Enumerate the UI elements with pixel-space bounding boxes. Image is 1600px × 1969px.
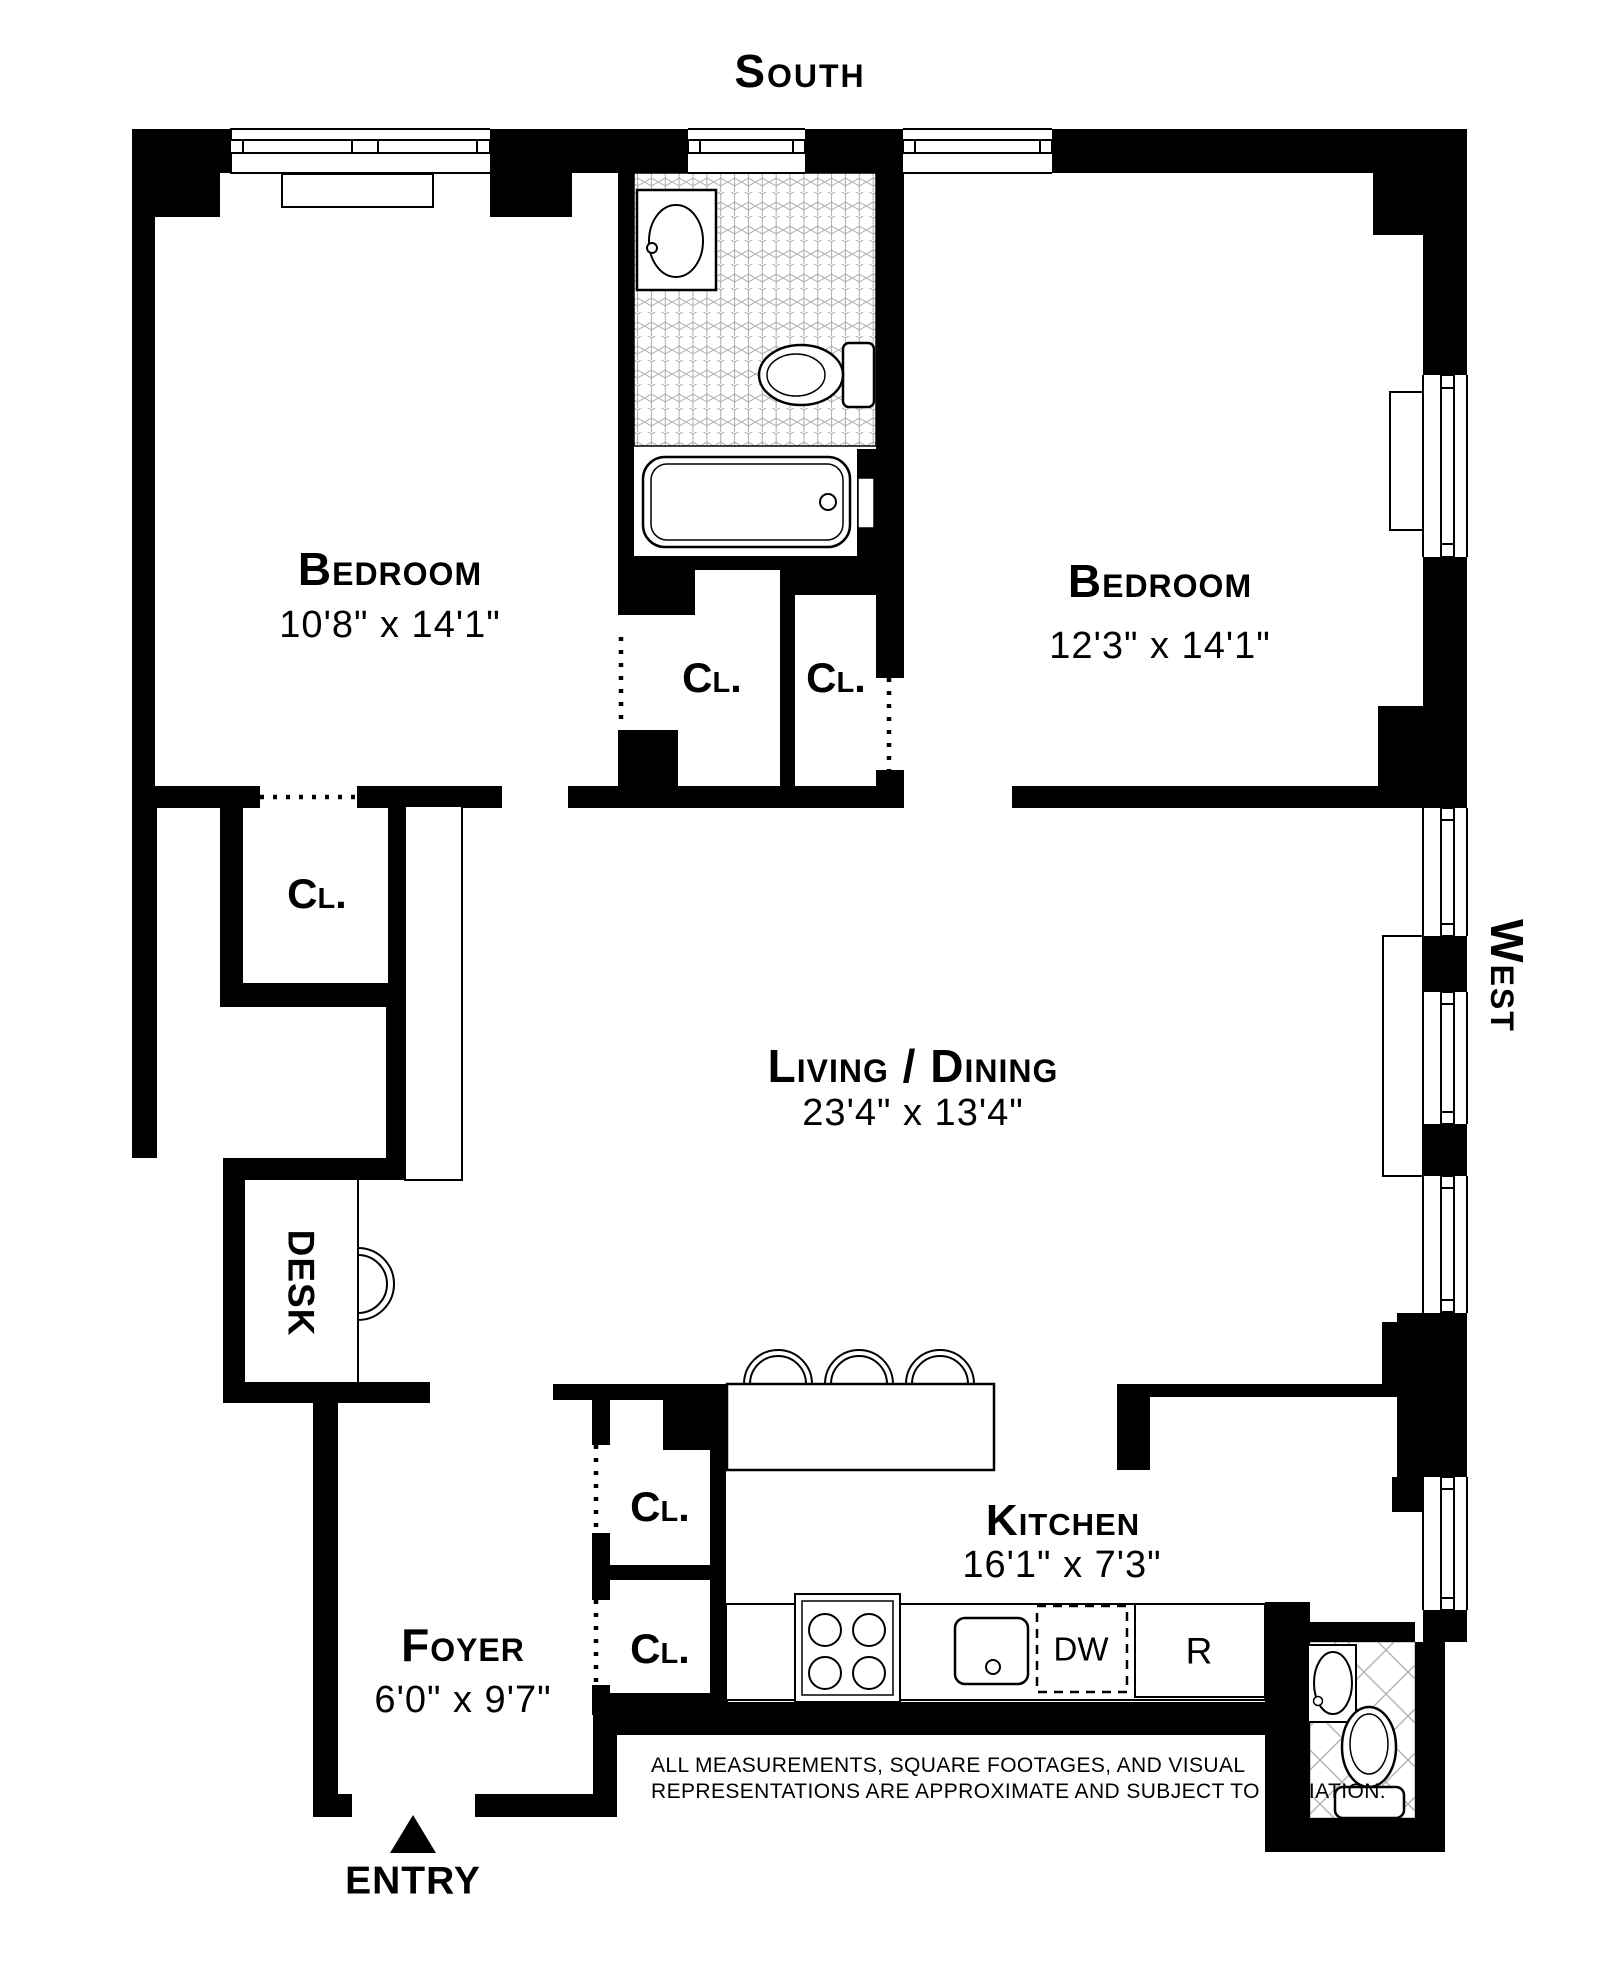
living-dining-name: Living / Dining: [768, 1043, 1059, 1089]
window-east-bedroom2: [1423, 375, 1467, 557]
refrigerator-label: R: [1186, 1633, 1213, 1670]
floor-plan: South West Bedroom 10'8" x 14'1" Bedroom…: [0, 0, 1600, 1969]
entry-label: ENTRY: [345, 1862, 481, 1901]
bathtub-icon: [643, 457, 874, 547]
island-stools: [744, 1350, 974, 1384]
window-west-living-2: [1423, 992, 1467, 1124]
bedroom1-dims: 10'8" x 14'1": [279, 606, 500, 644]
bedroom1-name: Bedroom: [298, 546, 482, 592]
kitchen-island: [727, 1384, 994, 1470]
entry-arrow-icon: [390, 1815, 436, 1853]
bathroom-sink-icon: [637, 190, 716, 290]
kitchen-name: Kitchen: [986, 1499, 1140, 1543]
bedroom2-dims: 12'3" x 14'1": [1049, 627, 1270, 665]
window-south-bedroom2: [903, 129, 1052, 173]
window-west-kitchen: [1423, 1477, 1467, 1610]
bathroom2-sink-icon: [1308, 1645, 1356, 1722]
disclaimer-line-1: ALL MEASUREMENTS, SQUARE FOOTAGES, AND V…: [651, 1753, 1386, 1779]
window-south-bathroom: [688, 129, 805, 173]
radiator-living: [1383, 936, 1423, 1176]
desk-chair-icon: [358, 1248, 394, 1320]
living-dining-dims: 23'4" x 13'4": [802, 1094, 1023, 1132]
compass-south-label: South: [734, 48, 865, 94]
disclaimer-text: ALL MEASUREMENTS, SQUARE FOOTAGES, AND V…: [651, 1753, 1386, 1806]
kitchen-dims: 16'1" x 7'3": [962, 1546, 1161, 1584]
floor-plan-drawing: [0, 0, 1600, 1969]
disclaimer-line-2: REPRESENTATIONS ARE APPROXIMATE AND SUBJ…: [651, 1779, 1386, 1805]
desk-label: DESK: [283, 1230, 320, 1337]
kitchen-sink-icon: [955, 1618, 1028, 1684]
closet-foyer-upper-label: Cl.: [630, 1486, 690, 1528]
closet-bedroom2-label: Cl.: [806, 657, 866, 699]
stove-icon: [795, 1594, 900, 1702]
window-west-living-3: [1423, 1176, 1467, 1313]
closet-bedroom1-lower-label: Cl.: [287, 873, 347, 915]
dishwasher-label: DW: [1054, 1633, 1109, 1666]
wall-strip: [405, 806, 462, 1180]
foyer-name: Foyer: [401, 1622, 525, 1668]
tub-niche: [858, 478, 874, 528]
closet-bedroom1-side-label: Cl.: [682, 657, 742, 699]
bedroom2-name: Bedroom: [1068, 558, 1252, 604]
window-west-living-1: [1423, 808, 1467, 936]
window-south-bedroom1: [230, 129, 490, 173]
radiator-bedroom1: [282, 174, 433, 207]
toilet-icon: [759, 343, 874, 407]
closet-foyer-lower-label: Cl.: [630, 1628, 690, 1670]
compass-west-label: West: [1484, 919, 1530, 1033]
foyer-dims: 6'0" x 9'7": [374, 1681, 551, 1719]
radiator-bedroom2: [1390, 392, 1423, 530]
